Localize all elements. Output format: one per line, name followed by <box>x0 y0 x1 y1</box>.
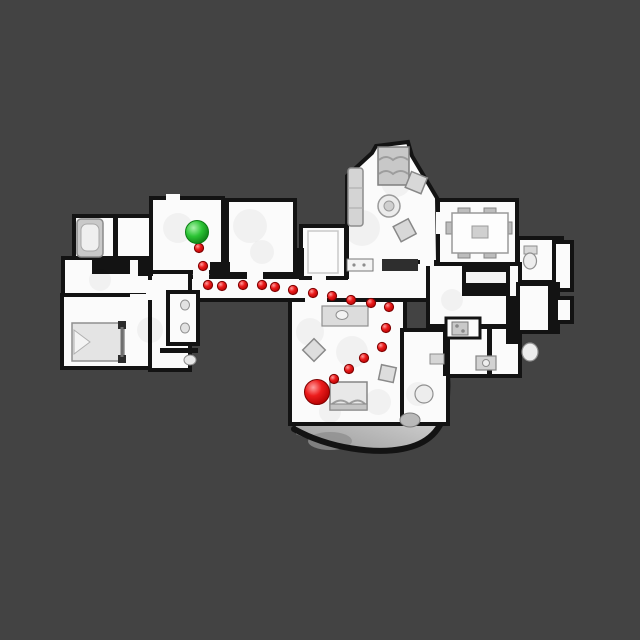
trail-dot <box>329 374 338 383</box>
sink <box>181 323 190 333</box>
side-table <box>378 365 396 383</box>
door-gap <box>247 270 263 280</box>
shower <box>415 385 433 403</box>
trail-dot <box>359 353 368 362</box>
toilet <box>184 355 196 365</box>
trail-dot <box>270 282 279 291</box>
bathtub-basin <box>81 224 99 251</box>
topdown-map <box>0 0 640 640</box>
bathroom-right-top <box>524 246 538 269</box>
wall-chunk <box>160 348 198 353</box>
topdown-map-viewport <box>0 0 640 640</box>
goal-marker <box>186 221 209 244</box>
kitchen-counter-top <box>466 272 506 283</box>
agent-marker <box>305 380 330 405</box>
room-bath-bottom <box>402 330 448 424</box>
stove <box>452 322 468 335</box>
trail-dot <box>381 323 390 332</box>
terrace-chair <box>400 413 420 427</box>
trail-dot <box>327 291 336 300</box>
door-gap <box>166 194 180 202</box>
trail-dot <box>384 302 393 311</box>
trail-dot <box>217 281 226 290</box>
room-wc-left <box>168 292 198 344</box>
sink <box>430 354 444 364</box>
wall-chunk <box>548 286 556 332</box>
door-gap <box>436 212 442 234</box>
trail-dot <box>346 295 355 304</box>
trail-dot <box>344 364 353 373</box>
trail-dot <box>257 280 266 289</box>
wall-chunk <box>210 262 230 279</box>
wall-chunk <box>506 296 520 344</box>
trail-dot <box>308 288 317 297</box>
trail-dot <box>288 285 297 294</box>
wall-chunk <box>294 248 304 278</box>
bed-left <box>72 321 126 363</box>
door-gap <box>130 294 152 300</box>
trail-dot <box>203 280 212 289</box>
trail-dot <box>238 280 247 289</box>
bed-outline <box>308 231 338 273</box>
room-far-right <box>556 298 572 322</box>
trail-dot <box>366 298 375 307</box>
loveseat <box>330 382 367 410</box>
toilet <box>522 343 538 361</box>
toilet <box>524 253 537 269</box>
sofa-top <box>378 147 409 185</box>
wall-chunk <box>113 214 118 258</box>
dining-set <box>446 208 512 258</box>
sideboard <box>382 259 418 271</box>
trail-dot <box>198 261 207 270</box>
cabinet <box>347 259 373 271</box>
toilet <box>181 300 190 310</box>
door-gap <box>305 296 327 304</box>
door-gap <box>420 258 434 266</box>
trail-dot <box>194 243 203 252</box>
sofa-left <box>348 168 363 226</box>
trail-dot <box>377 342 386 351</box>
wall-chunk <box>138 258 153 276</box>
